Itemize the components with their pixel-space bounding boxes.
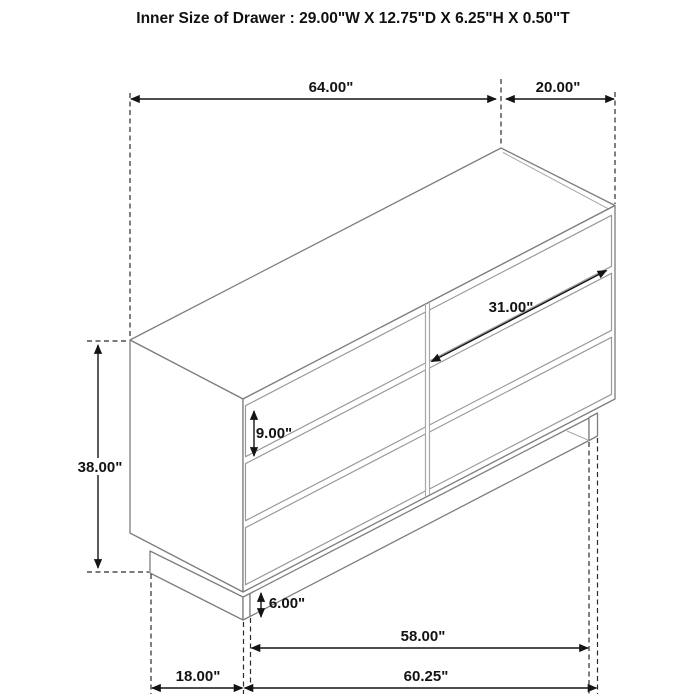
dresser-dimension-diagram: Inner Size of Drawer : 29.00"W X 12.75"D… [0, 0, 700, 700]
diagram-title: Inner Size of Drawer : 29.00"W X 12.75"D… [136, 10, 570, 27]
dimension-inner-span-58: 58.00" [252, 628, 589, 648]
front-left-leg [243, 594, 250, 621]
dimension-height-38: 38.00" [75, 345, 124, 568]
front-right-leg [589, 413, 598, 441]
dim-label-width: 64.00" [309, 79, 354, 96]
dim-label-drawer-width: 31.00" [489, 299, 534, 316]
dim-label-base-depth: 18.00" [176, 668, 221, 685]
dimension-depth-20: 20.00" [506, 79, 614, 99]
dimension-outer-width-6025: 60.25" [245, 668, 597, 688]
dim-label-height: 38.00" [78, 459, 123, 476]
dim-label-outer-width: 60.25" [404, 668, 449, 685]
dim-label-top-drawer: 9.00" [256, 425, 292, 442]
dim-label-depth: 20.00" [536, 79, 581, 96]
dimension-width-64: 64.00" [131, 79, 496, 99]
dresser-drawing [130, 148, 615, 620]
dim-label-inner-span: 58.00" [401, 628, 446, 645]
dimension-base-depth-18: 18.00" [152, 668, 243, 688]
dim-label-base-height: 6.00" [269, 595, 305, 612]
